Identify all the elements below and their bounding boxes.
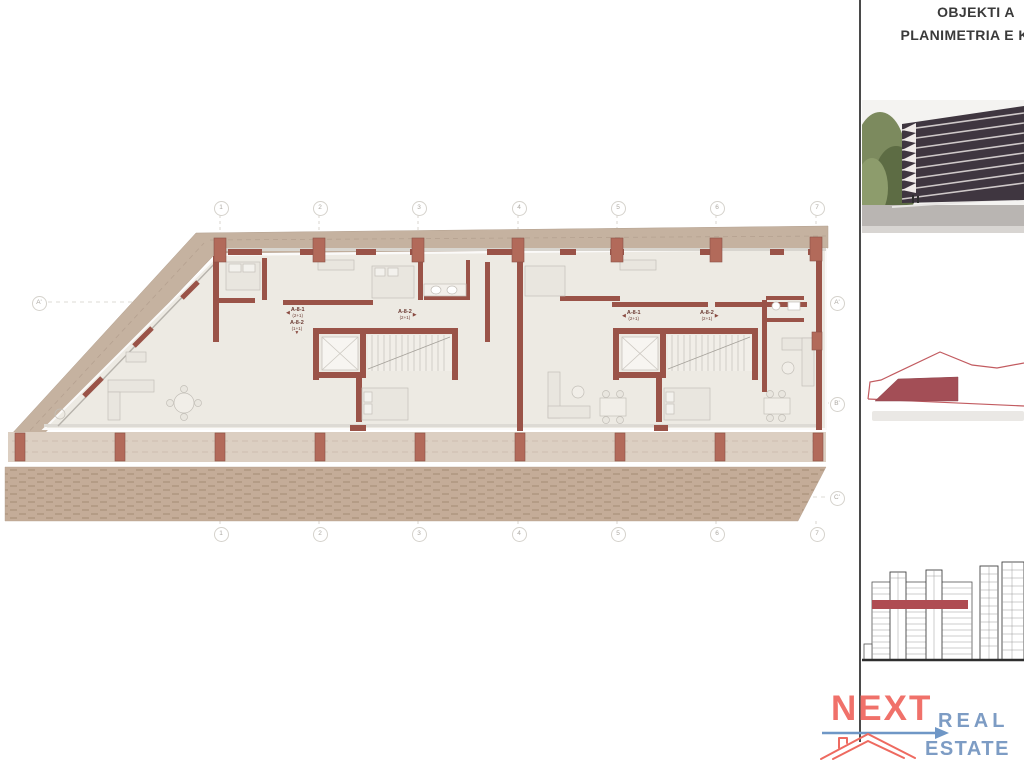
site-plan-diagram — [860, 335, 1024, 435]
floor-plan-drawing — [0, 0, 860, 768]
grid-marker-top-2: 2 — [313, 201, 328, 216]
unit-label-3: A-8-2(2+1) ▶ — [398, 310, 417, 320]
grid-marker-bottom-7: 7 — [810, 527, 825, 542]
grid-marker-bottom-2: 2 — [313, 527, 328, 542]
grid-marker-top-3: 3 — [412, 201, 427, 216]
grid-marker-top-4: 4 — [512, 201, 527, 216]
logo-roof-icon — [818, 728, 920, 762]
unit-label-2: A-8-2(1+1) ▼ — [290, 321, 304, 336]
grid-marker-bottom-6: 6 — [710, 527, 725, 542]
project-title: OBJEKTI A — [870, 4, 1024, 20]
building-footprint — [875, 377, 958, 401]
paving-strip — [5, 467, 826, 521]
arrow-left-icon: ◀ — [286, 311, 290, 316]
elevation-drawing — [860, 556, 1024, 668]
drawing-title: PLANIMETRIA E KATI — [870, 27, 1024, 43]
grid-marker-top-6: 6 — [710, 201, 725, 216]
unit-label-4: ◀ A-8-1(2+1) — [622, 311, 641, 321]
title-block: OBJEKTI A PLANIMETRIA E KATI — [870, 4, 1024, 43]
grid-marker-bottom-1: 1 — [214, 527, 229, 542]
row-marker-left-a: A' — [32, 296, 47, 311]
sheet: 1 2 3 4 5 6 7 1 2 3 4 5 6 7 A' A' B' C' … — [0, 0, 1024, 768]
highlighted-floor-band — [872, 600, 968, 609]
arrow-right-icon: ▶ — [715, 314, 719, 319]
arrow-down-icon: ▼ — [294, 331, 299, 336]
logo-word-next: NEXT — [831, 689, 932, 729]
logo-word-estate: ESTATE — [925, 738, 1010, 761]
row-marker-right-b: B' — [830, 397, 845, 412]
grid-marker-bottom-4: 4 — [512, 527, 527, 542]
unit-label-5: A-8-2(2+1) ▶ — [700, 311, 719, 321]
unit-label-1: ◀ A-8-1(2+1) — [286, 308, 305, 318]
row-marker-right-a: A' — [830, 296, 845, 311]
arrow-left-icon: ◀ — [622, 314, 626, 319]
building-render-photo — [862, 100, 1024, 233]
grid-marker-top-7: 7 — [810, 201, 825, 216]
arrow-right-icon: ▶ — [413, 313, 417, 318]
grid-marker-bottom-5: 5 — [611, 527, 626, 542]
grid-marker-top-1: 1 — [214, 201, 229, 216]
row-marker-right-c: C' — [830, 491, 845, 506]
grid-marker-top-5: 5 — [611, 201, 626, 216]
grid-marker-bottom-3: 3 — [412, 527, 427, 542]
